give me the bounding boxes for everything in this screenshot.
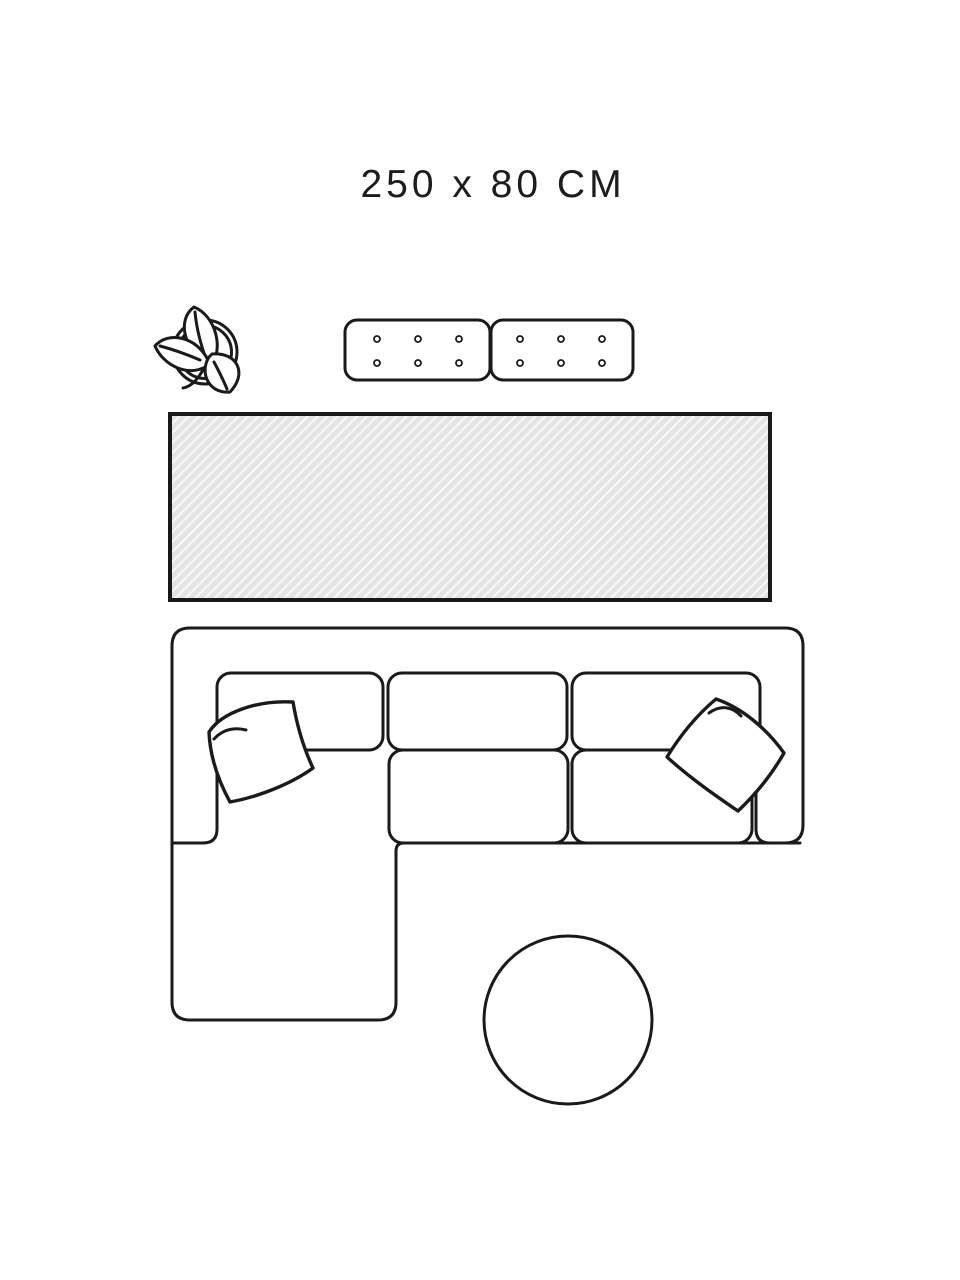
runner-rug xyxy=(170,414,770,600)
sofa-seat-cushion-middle xyxy=(389,750,568,843)
sideboard-right-module xyxy=(491,320,633,380)
round-side-table xyxy=(484,936,652,1104)
size-diagram: 250 x 80 CM xyxy=(0,0,960,1280)
room-plan-illustration xyxy=(0,0,960,1280)
sideboard xyxy=(345,320,633,380)
sofa-back-cushion-middle xyxy=(388,673,567,750)
potted-plant-icon xyxy=(155,307,239,392)
sideboard-left-module xyxy=(345,320,490,380)
plant-leaf-bottom xyxy=(205,354,239,392)
corner-sofa xyxy=(172,628,803,1020)
